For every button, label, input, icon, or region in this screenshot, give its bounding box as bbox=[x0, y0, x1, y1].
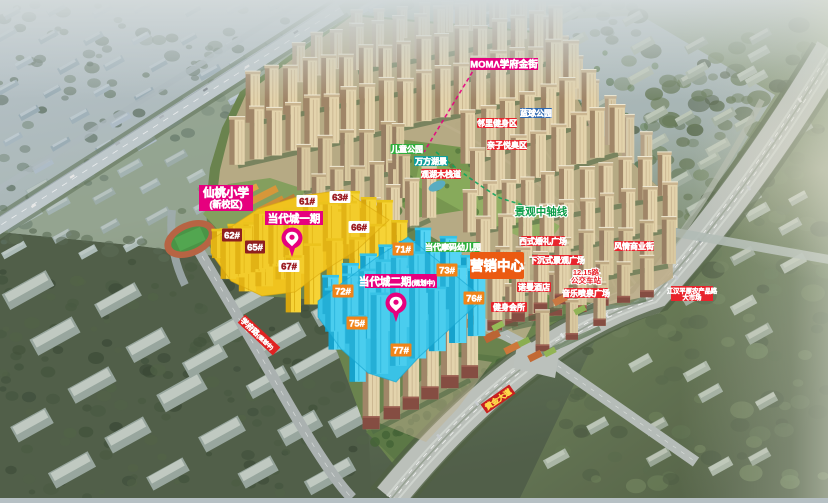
svg-text:MOMΛ学府金街: MOMΛ学府金街 bbox=[470, 59, 538, 71]
svg-text:景观中轴线: 景观中轴线 bbox=[514, 205, 568, 218]
svg-text:万方湖景: 万方湖景 bbox=[414, 156, 447, 166]
svg-text:63#: 63# bbox=[332, 192, 349, 203]
svg-text:77#: 77# bbox=[393, 345, 410, 356]
svg-text:仙桃小学: 仙桃小学 bbox=[203, 186, 249, 200]
svg-text:当代城一期: 当代城一期 bbox=[268, 212, 321, 225]
svg-text:公交车站: 公交车站 bbox=[571, 275, 601, 285]
svg-text:诺曼酒店: 诺曼酒店 bbox=[518, 282, 550, 292]
svg-text:62#: 62# bbox=[224, 230, 241, 241]
svg-text:67#: 67# bbox=[281, 261, 298, 272]
svg-text:观湖木栈道: 观湖木栈道 bbox=[421, 169, 461, 179]
svg-text:音乐喷泉广场: 音乐喷泉广场 bbox=[562, 288, 610, 298]
svg-text:西式婚礼广场: 西式婚礼广场 bbox=[519, 236, 567, 246]
svg-text:73#: 73# bbox=[439, 265, 456, 276]
svg-text:大市场: 大市场 bbox=[683, 293, 703, 302]
svg-text:71#: 71# bbox=[395, 244, 412, 255]
svg-text:65#: 65# bbox=[247, 242, 264, 253]
svg-text:61#: 61# bbox=[299, 196, 316, 207]
svg-text:风情商业街: 风情商业街 bbox=[614, 241, 654, 251]
svg-text:66#: 66# bbox=[351, 222, 368, 233]
svg-text:(新校区): (新校区) bbox=[210, 199, 243, 210]
svg-text:当代摩码幼儿园: 当代摩码幼儿园 bbox=[425, 242, 481, 252]
svg-text:健身会所: 健身会所 bbox=[493, 302, 525, 312]
svg-text:72#: 72# bbox=[335, 286, 352, 297]
svg-text:75#: 75# bbox=[349, 318, 366, 329]
svg-text:76#: 76# bbox=[466, 293, 483, 304]
svg-text:蓝球公园: 蓝球公园 bbox=[520, 108, 552, 118]
svg-text:下沉式景观广场: 下沉式景观广场 bbox=[529, 255, 585, 265]
svg-text:邻里健身区: 邻里健身区 bbox=[476, 118, 517, 128]
svg-text:亲子悦奥区: 亲子悦奥区 bbox=[487, 140, 527, 150]
svg-text:儿童公园: 儿童公园 bbox=[390, 144, 423, 154]
svg-text:营销中心: 营销中心 bbox=[470, 258, 524, 274]
